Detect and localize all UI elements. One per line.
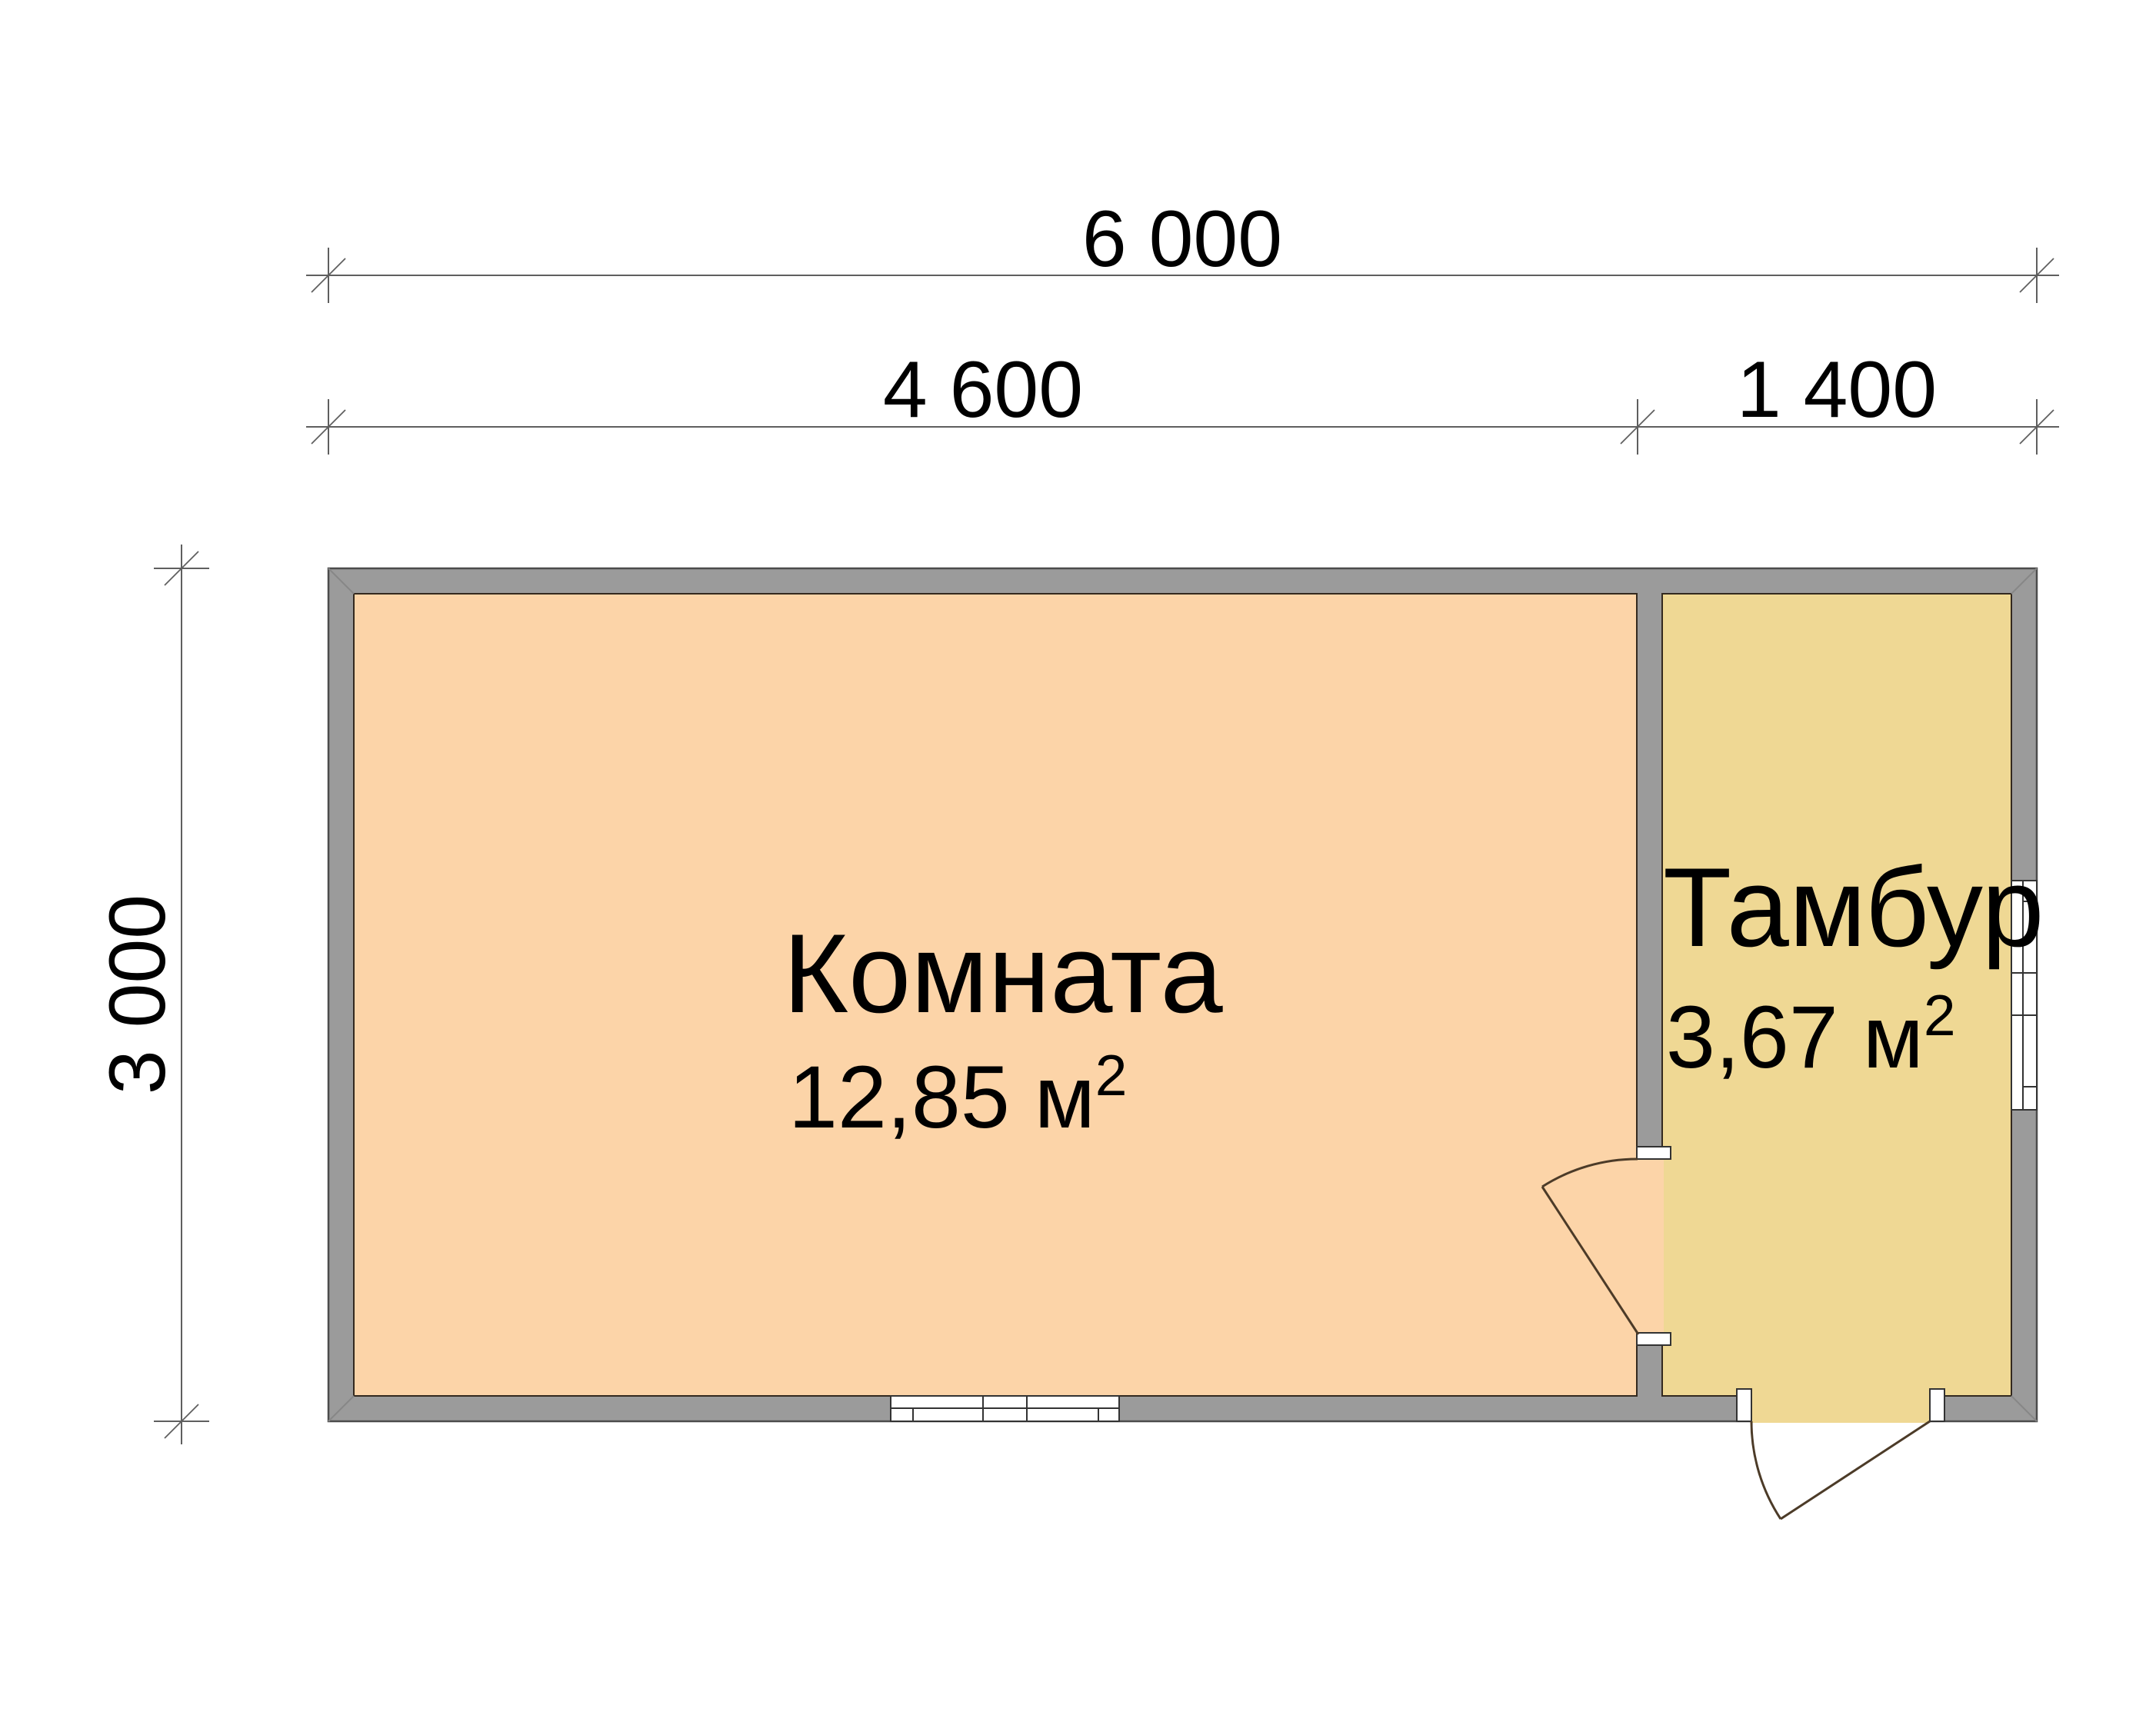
dimension-segments: 4 600 1 400 xyxy=(306,345,2059,455)
exterior-door-swing-arc xyxy=(1751,1421,1781,1519)
interior-door-jamb-top xyxy=(1637,1147,1671,1159)
dim-label-tambour-width: 1 400 xyxy=(1737,345,1937,435)
interior-door-jamb-bottom xyxy=(1637,1333,1671,1345)
room-komnata-area: 12,85 м2 xyxy=(788,1043,1128,1147)
floor-plan-page: 6 000 4 600 1 400 3 000 Комната 12,85 м2… xyxy=(0,0,2156,1712)
dim-label-room-width: 4 600 xyxy=(883,345,1083,435)
exterior-door xyxy=(1751,1421,1930,1519)
room-tambur-area-value: 3,67 м xyxy=(1666,988,1924,1087)
exterior-door-opening xyxy=(1751,1394,1930,1423)
dimension-total-width: 6 000 xyxy=(306,195,2059,303)
interior-door-opening xyxy=(1635,1158,1664,1334)
window-bottom xyxy=(891,1396,1119,1421)
room-tambur-name: Тамбур xyxy=(1663,844,2044,970)
room-komnata-name: Комната xyxy=(783,911,1223,1036)
dim-label-depth: 3 000 xyxy=(93,894,182,1094)
dimension-depth: 3 000 xyxy=(93,545,209,1444)
room-tambur-area: 3,67 м2 xyxy=(1666,983,1956,1087)
exterior-door-jamb-left xyxy=(1737,1389,1751,1421)
exterior-door-jamb-right xyxy=(1930,1389,1944,1421)
room-komnata-area-value: 12,85 м xyxy=(788,1048,1095,1147)
dim-label-total-width: 6 000 xyxy=(1082,195,1282,284)
exterior-door-leaf xyxy=(1781,1421,1930,1519)
floor-plan-svg: 6 000 4 600 1 400 3 000 Комната 12,85 м2… xyxy=(0,0,2156,1712)
room-komnata-area-sup: 2 xyxy=(1095,1043,1128,1107)
room-tambur-area-sup: 2 xyxy=(1924,983,1956,1048)
